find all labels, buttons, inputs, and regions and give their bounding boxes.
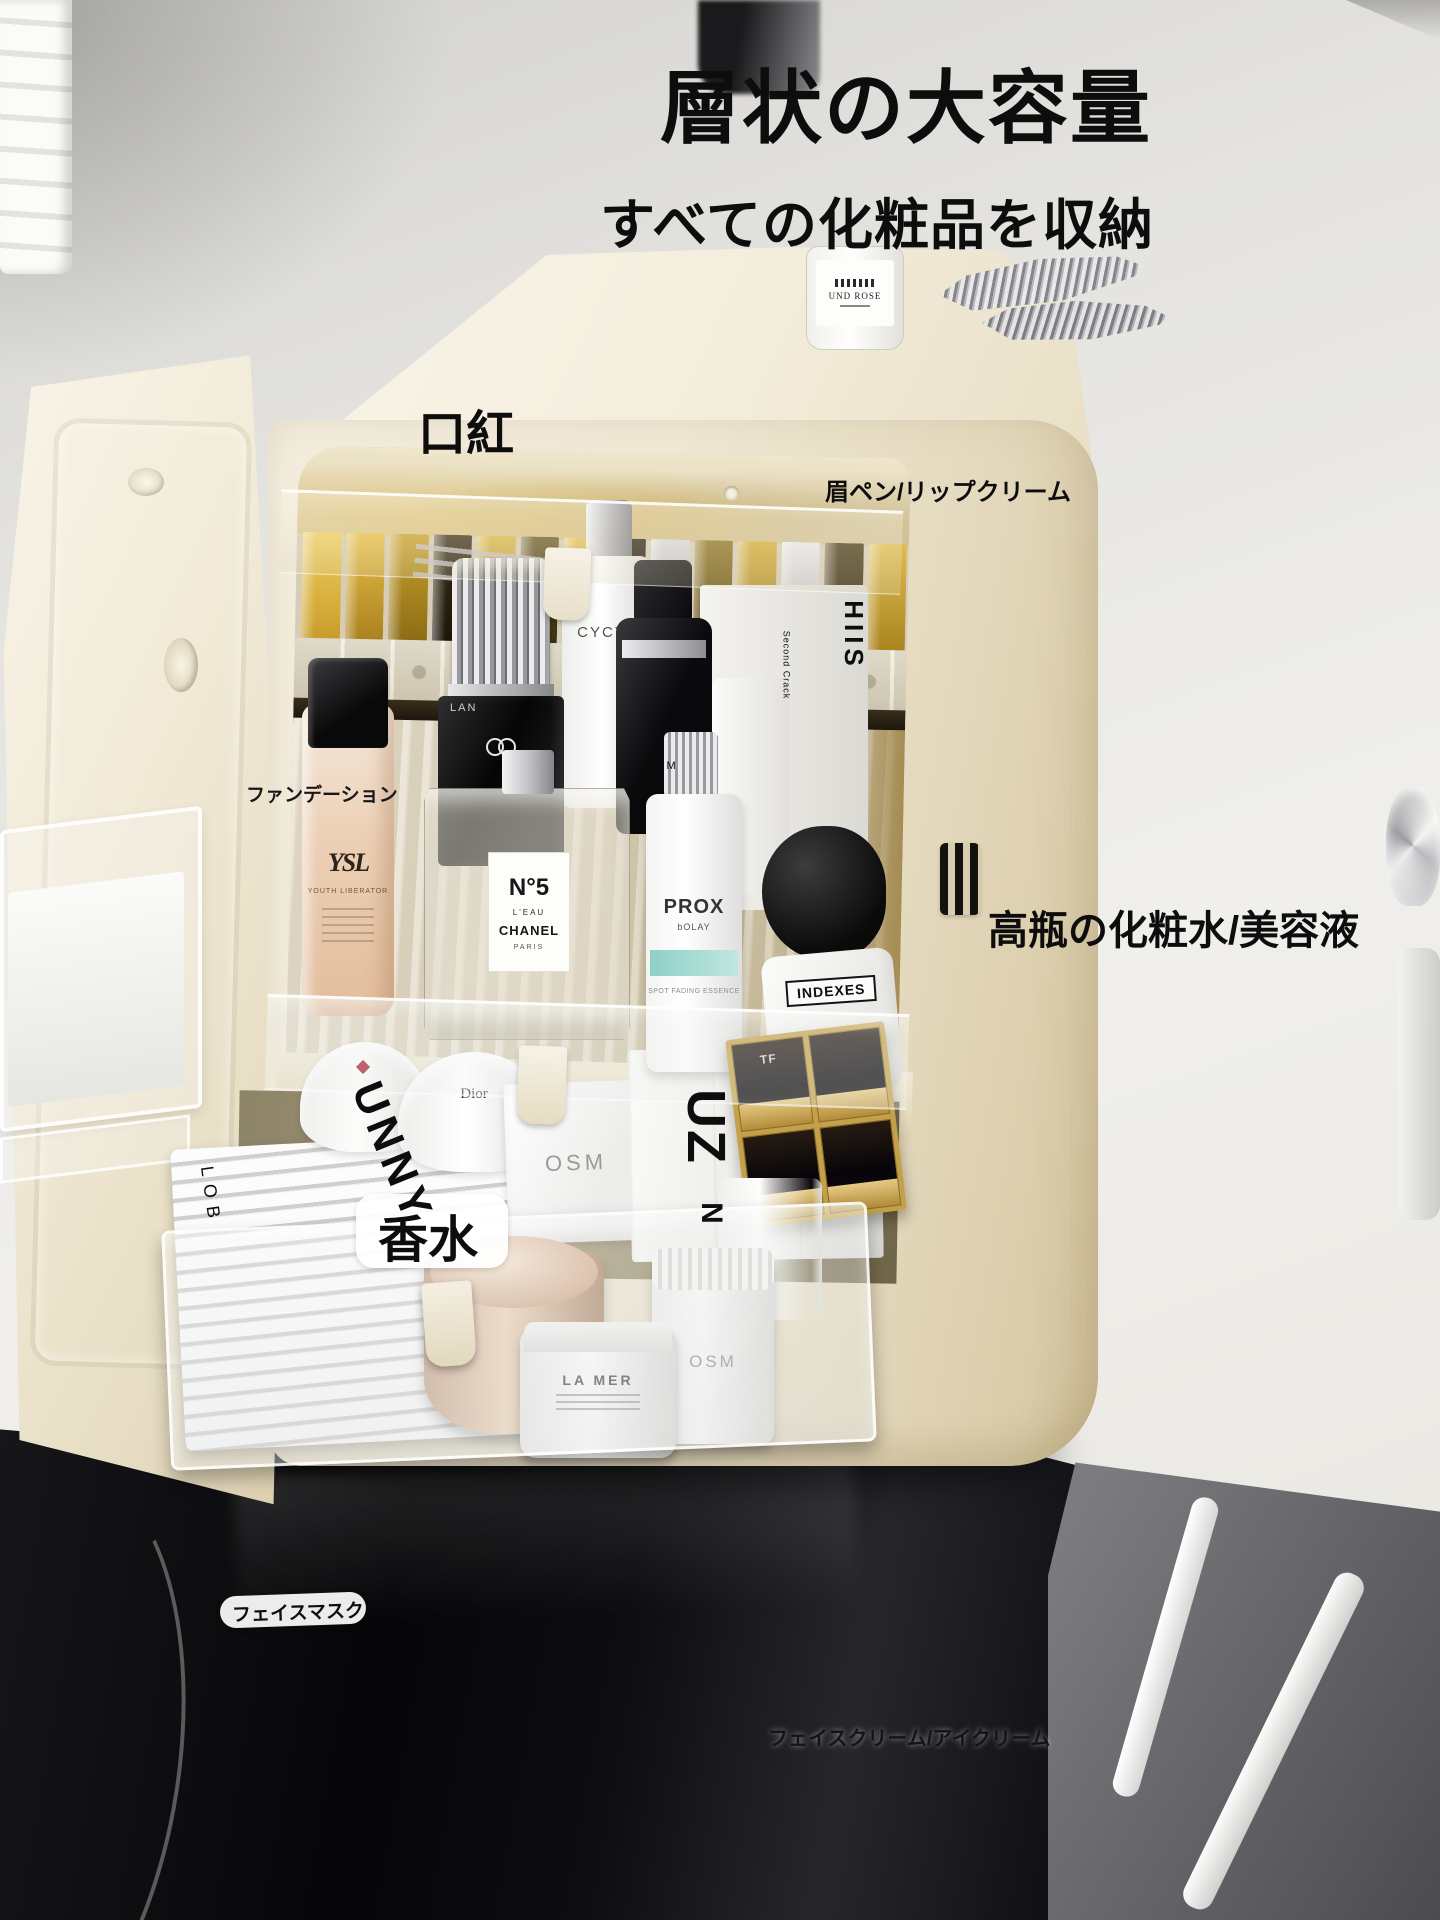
box-right-letter: N	[694, 1202, 728, 1224]
mini-perfume-name: UND ROSE	[829, 291, 882, 301]
tissue-stack	[0, 0, 72, 274]
cabinet-side-vent	[940, 843, 980, 915]
label-sub-line	[840, 305, 870, 307]
serum-description: SPOT FADING ESSENCE	[646, 988, 742, 995]
door-pocket-contents	[8, 871, 184, 1107]
perfume-label-number: N°5	[509, 874, 549, 902]
perfume-label-line: L'EAU	[513, 908, 545, 917]
headline-subtitle: すべての化粧品を収納	[600, 180, 1154, 260]
drawer-pull-tab	[421, 1280, 477, 1367]
serum-sub-brand: bOLAY	[646, 922, 742, 932]
dropper-silver-band	[622, 640, 706, 658]
serum-teal-band	[650, 950, 738, 976]
perfume-bottle-cap	[502, 750, 554, 794]
callout-face-mask: フェイスマスク	[232, 1596, 365, 1628]
black-sponge	[762, 826, 886, 960]
back-box-text: HIIS	[838, 600, 869, 671]
drawer-acrylic-front	[161, 1201, 876, 1470]
black-bottle-brand: LAN	[450, 702, 477, 714]
dropper-bottle-text: COM	[646, 760, 678, 772]
callout-perfume: 香水	[378, 1200, 478, 1272]
callout-brow-lip: 眉ペン/リップクリーム	[825, 472, 1071, 507]
callout-face-eye-cream: フェイスクリーム/アイクリーム	[768, 1722, 1050, 1751]
box-right-letters: UZ	[675, 1089, 737, 1165]
cosmetic-box-brand: OSM	[506, 1148, 647, 1179]
foundation-label-text-rows	[322, 908, 374, 942]
foundation-label-line: YOUTH LIBERATOR	[302, 888, 394, 895]
callout-toner-serum: 高瓶の化粧水/美容液	[988, 898, 1359, 956]
middle-shelf-pull-tab	[517, 1045, 568, 1125]
crystal-ornament	[1386, 786, 1440, 906]
perfume-label-city: PARIS	[514, 944, 545, 951]
rivet-detail	[724, 486, 739, 501]
label-script-line	[835, 279, 875, 287]
callout-lipstick: 口紅	[418, 394, 514, 464]
callout-foundation: ファンデーション	[246, 780, 398, 807]
headline-title: 層状の大容量	[660, 44, 1152, 160]
door-hinge	[128, 468, 164, 496]
perfume-bottle-label: N°5 L'EAU CHANEL PARIS	[488, 852, 570, 972]
mini-perfume-label: UND ROSE	[816, 260, 894, 326]
perfume-label-brand: CHANEL	[499, 923, 559, 938]
foundation-bottle-cap	[308, 658, 388, 748]
foundation-brand-logo: YSL	[322, 848, 374, 878]
serum-brand: PROX	[646, 896, 742, 919]
lipstick-grid-cell	[819, 1118, 902, 1214]
white-pole	[1398, 948, 1440, 1220]
back-box-small-text: Second Crack	[781, 631, 791, 700]
top-tray-pull-tab	[543, 547, 591, 621]
product-scene: HIIS Second Crack YSL YOUTH LIBERATOR CY…	[0, 0, 1440, 1920]
door-hinge	[164, 638, 198, 692]
